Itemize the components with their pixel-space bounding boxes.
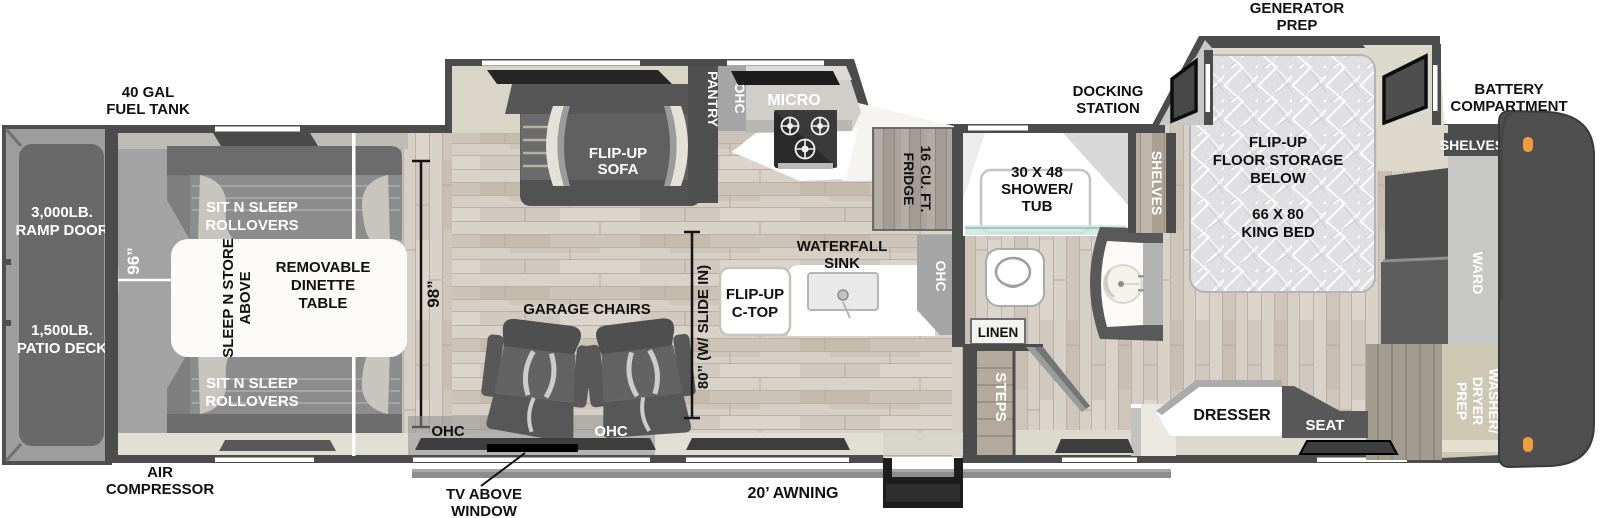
svg-text:COMPRESSOR: COMPRESSOR xyxy=(106,481,215,498)
svg-text:GENERATOR: GENERATOR xyxy=(1250,0,1345,17)
svg-text:OHC: OHC xyxy=(594,423,628,440)
svg-text:LINEN: LINEN xyxy=(978,325,1019,340)
svg-text:REMOVABLE: REMOVABLE xyxy=(276,259,371,276)
svg-text:OHC: OHC xyxy=(732,82,748,113)
svg-text:COMPARTMENT: COMPARTMENT xyxy=(1450,98,1567,115)
svg-text:SINK: SINK xyxy=(824,255,860,272)
svg-text:WINDOW: WINDOW xyxy=(451,503,518,518)
svg-text:FUEL TANK: FUEL TANK xyxy=(106,101,190,118)
svg-text:DOCKING: DOCKING xyxy=(1073,83,1144,100)
svg-text:OHC: OHC xyxy=(933,260,949,291)
svg-text:WARD: WARD xyxy=(1470,252,1486,295)
svg-text:SIT N SLEEP: SIT N SLEEP xyxy=(206,199,298,216)
svg-text:FRIDGE: FRIDGE xyxy=(901,153,917,206)
svg-text:98”: 98” xyxy=(424,280,443,307)
svg-text:TUB: TUB xyxy=(1022,198,1053,215)
svg-text:PREP: PREP xyxy=(1277,17,1318,34)
svg-text:SOFA: SOFA xyxy=(598,161,639,178)
svg-text:BATTERY: BATTERY xyxy=(1474,81,1543,98)
svg-text:MICRO: MICRO xyxy=(767,92,820,109)
svg-text:TABLE: TABLE xyxy=(299,295,348,312)
svg-text:FLIP-UP: FLIP-UP xyxy=(726,286,784,303)
svg-text:SEAT: SEAT xyxy=(1306,417,1345,434)
svg-text:PATIO DECK: PATIO DECK xyxy=(17,340,107,357)
svg-text:SLEEP N STORE: SLEEP N STORE xyxy=(220,238,237,357)
svg-text:DINETTE: DINETTE xyxy=(291,277,355,294)
svg-text:ROLLOVERS: ROLLOVERS xyxy=(205,217,298,234)
svg-text:FLIP-UP: FLIP-UP xyxy=(589,145,647,162)
svg-text:BELOW: BELOW xyxy=(1250,170,1307,187)
svg-text:96”: 96” xyxy=(124,247,143,274)
svg-text:66 X 80: 66 X 80 xyxy=(1252,206,1304,223)
svg-text:STATION: STATION xyxy=(1076,100,1140,117)
svg-text:TV ABOVE: TV ABOVE xyxy=(446,486,522,503)
svg-text:1,500LB.: 1,500LB. xyxy=(31,322,93,339)
svg-text:PREP: PREP xyxy=(1454,382,1470,420)
svg-text:ABOVE: ABOVE xyxy=(237,271,254,324)
svg-text:FLOOR STORAGE: FLOOR STORAGE xyxy=(1213,152,1344,169)
svg-text:SHELVES: SHELVES xyxy=(1149,151,1165,215)
svg-text:3,000LB.: 3,000LB. xyxy=(31,204,93,221)
svg-text:30 X 48: 30 X 48 xyxy=(1011,164,1063,181)
svg-text:SHELVES: SHELVES xyxy=(1440,137,1504,153)
svg-text:40 GAL: 40 GAL xyxy=(122,84,175,101)
svg-text:OHC: OHC xyxy=(431,423,465,440)
svg-text:DRYER: DRYER xyxy=(1470,377,1486,426)
svg-text:AIR: AIR xyxy=(147,464,173,481)
svg-text:DRESSER: DRESSER xyxy=(1193,407,1271,424)
svg-text:FLIP-UP: FLIP-UP xyxy=(1249,134,1307,151)
svg-text:C-TOP: C-TOP xyxy=(732,304,778,321)
svg-text:ROLLOVERS: ROLLOVERS xyxy=(205,393,298,410)
svg-text:STEPS: STEPS xyxy=(992,372,1009,421)
svg-text:20’ AWNING: 20’ AWNING xyxy=(748,485,839,502)
svg-text:KING BED: KING BED xyxy=(1241,224,1315,241)
svg-text:80” (W/ SLIDE IN): 80” (W/ SLIDE IN) xyxy=(695,265,712,389)
svg-text:16 CU. FT.: 16 CU. FT. xyxy=(918,146,934,213)
svg-text:SIT N SLEEP: SIT N SLEEP xyxy=(206,375,298,392)
svg-text:RAMP DOOR: RAMP DOOR xyxy=(15,222,108,239)
svg-text:WATERFALL: WATERFALL xyxy=(797,238,888,255)
svg-text:SHOWER/: SHOWER/ xyxy=(1001,181,1074,198)
svg-text:GARAGE CHAIRS: GARAGE CHAIRS xyxy=(523,301,651,318)
